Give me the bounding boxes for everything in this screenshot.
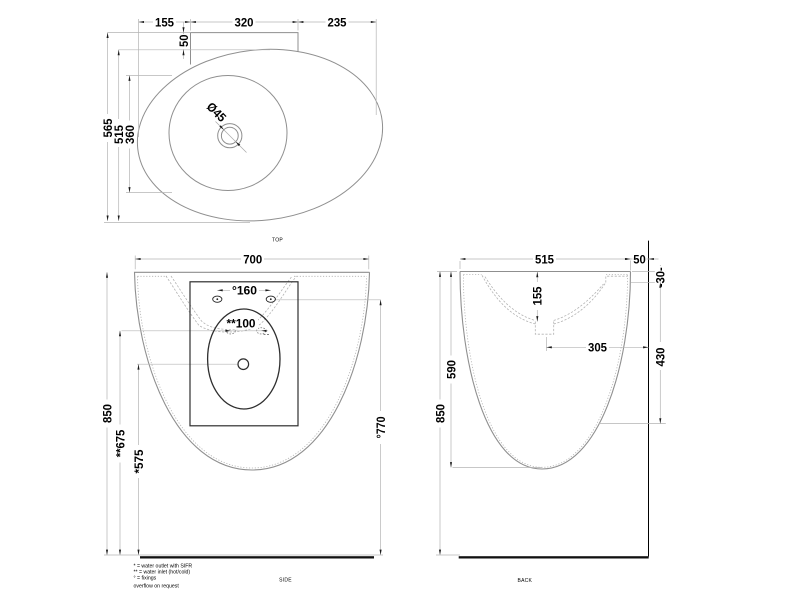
svg-text:320: 320 [235, 15, 254, 29]
svg-text:700: 700 [243, 252, 262, 266]
svg-text:°160: °160 [232, 284, 257, 298]
svg-text:°770: °770 [374, 416, 388, 438]
svg-text:° = fixings: ° = fixings [134, 576, 157, 582]
svg-text:* = water outlet with SIFR: * = water outlet with SIFR [134, 563, 193, 569]
svg-text:SIDE: SIDE [279, 578, 292, 584]
svg-text:overflow on request: overflow on request [134, 584, 180, 590]
svg-text:515: 515 [535, 252, 554, 266]
svg-text:430: 430 [654, 347, 668, 366]
svg-text:850: 850 [100, 404, 114, 423]
svg-text:305: 305 [588, 341, 607, 355]
svg-text:** = water inlet (hot/cold): ** = water inlet (hot/cold) [134, 570, 191, 576]
svg-text:850: 850 [433, 404, 447, 423]
svg-text:235: 235 [328, 15, 347, 29]
svg-text:590: 590 [444, 360, 458, 379]
svg-text:TOP: TOP [272, 238, 283, 244]
svg-text:50: 50 [633, 252, 646, 266]
svg-text:360: 360 [123, 125, 137, 144]
svg-text:50: 50 [177, 34, 191, 47]
svg-text:**100: **100 [227, 317, 256, 331]
svg-text:*575: *575 [132, 449, 146, 473]
svg-text:BACK: BACK [517, 578, 532, 584]
svg-text:155: 155 [531, 286, 545, 305]
svg-text:**675: **675 [113, 430, 127, 458]
svg-text:155: 155 [155, 15, 174, 29]
